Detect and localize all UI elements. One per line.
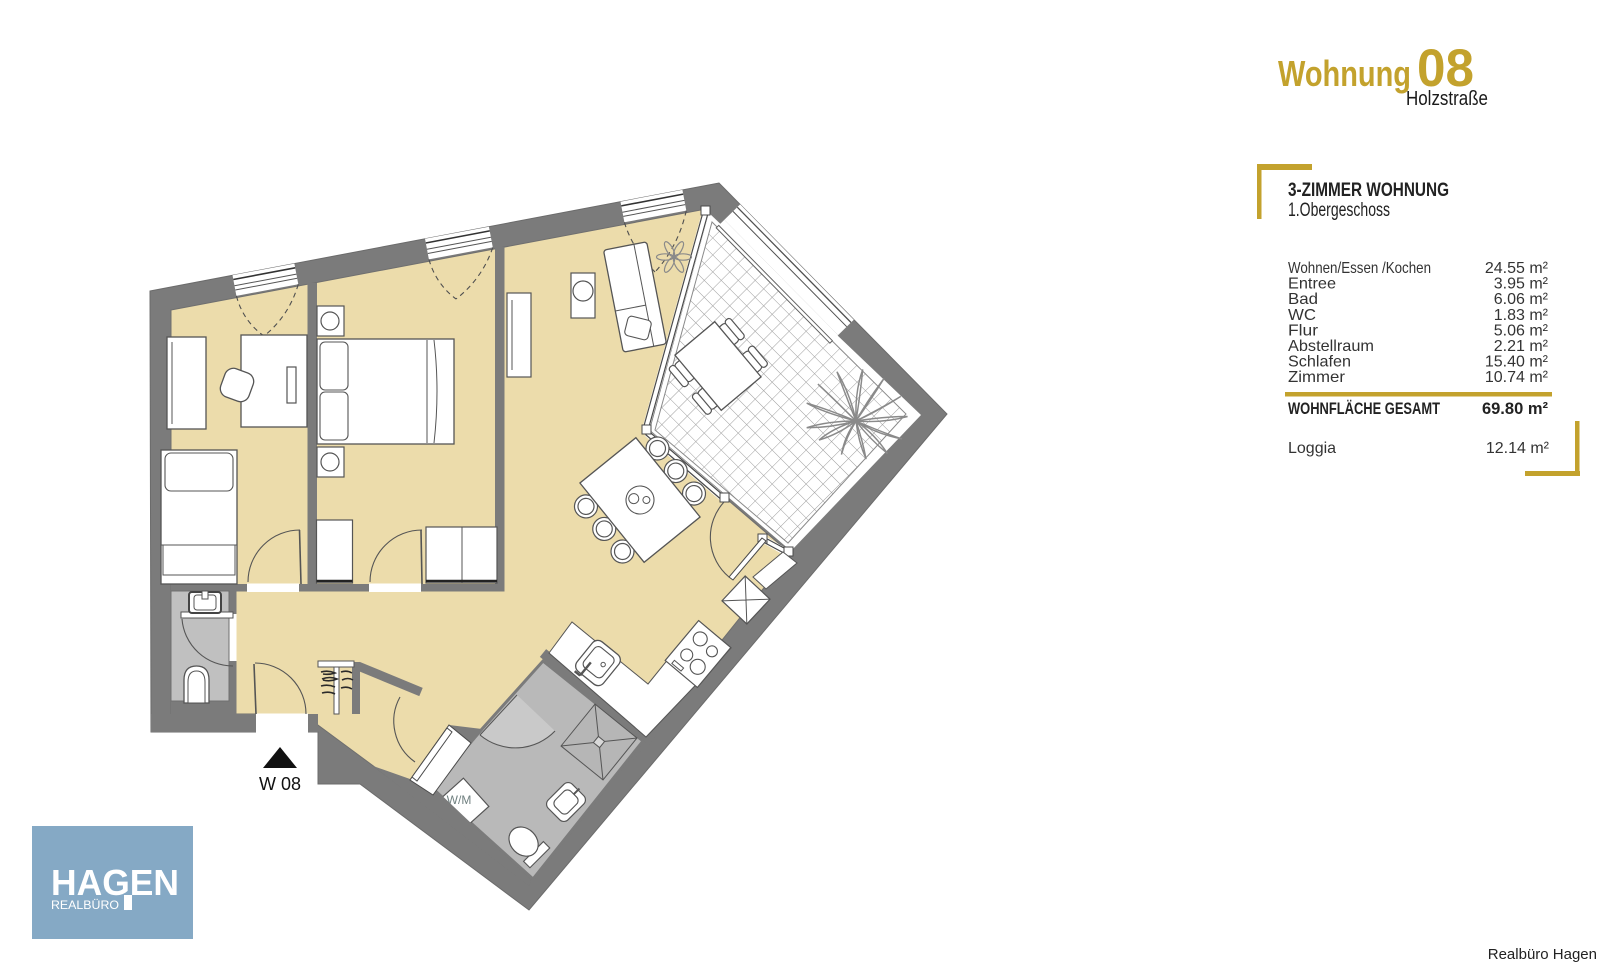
svg-text:HAGEN: HAGEN — [51, 862, 179, 903]
svg-text:10.74 m²: 10.74 m² — [1485, 369, 1549, 386]
svg-text:3-ZIMMER WOHNUNG: 3-ZIMMER WOHNUNG — [1288, 180, 1449, 201]
svg-text:Bad: Bad — [1288, 291, 1318, 308]
svg-text:Realbüro Hagen: Realbüro Hagen — [1488, 946, 1597, 963]
svg-text:Flur: Flur — [1288, 322, 1319, 339]
svg-text:W 08: W 08 — [259, 774, 301, 794]
svg-text:Schlafen: Schlafen — [1288, 354, 1351, 371]
svg-text:REALBÜRO: REALBÜRO — [51, 900, 119, 912]
svg-text:Abstellraum: Abstellraum — [1288, 338, 1374, 355]
svg-text:Entree: Entree — [1288, 276, 1336, 293]
svg-text:3.95 m²: 3.95 m² — [1494, 276, 1549, 293]
svg-text:Holzstraße: Holzstraße — [1406, 88, 1488, 110]
svg-text:Wohnen/Essen /Kochen: Wohnen/Essen /Kochen — [1288, 260, 1431, 277]
svg-text:Wohnung: Wohnung — [1278, 53, 1411, 94]
svg-text:WOHNFLÄCHE GESAMT: WOHNFLÄCHE GESAMT — [1288, 400, 1440, 418]
svg-text:2.21 m²: 2.21 m² — [1494, 338, 1549, 355]
svg-text:15.40 m²: 15.40 m² — [1485, 354, 1549, 371]
svg-text:6.06 m²: 6.06 m² — [1494, 291, 1549, 308]
svg-text:Loggia: Loggia — [1288, 440, 1336, 457]
svg-text:69.80 m²: 69.80 m² — [1482, 400, 1549, 418]
svg-text:1.83 m²: 1.83 m² — [1494, 307, 1549, 324]
svg-text:5.06 m²: 5.06 m² — [1494, 322, 1549, 339]
svg-text:Zimmer: Zimmer — [1288, 369, 1346, 386]
svg-text:WC: WC — [1288, 307, 1316, 324]
svg-text:24.55 m²: 24.55 m² — [1485, 260, 1549, 277]
svg-text:12.14 m²: 12.14 m² — [1486, 440, 1550, 457]
svg-text:1.Obergeschoss: 1.Obergeschoss — [1288, 200, 1390, 221]
